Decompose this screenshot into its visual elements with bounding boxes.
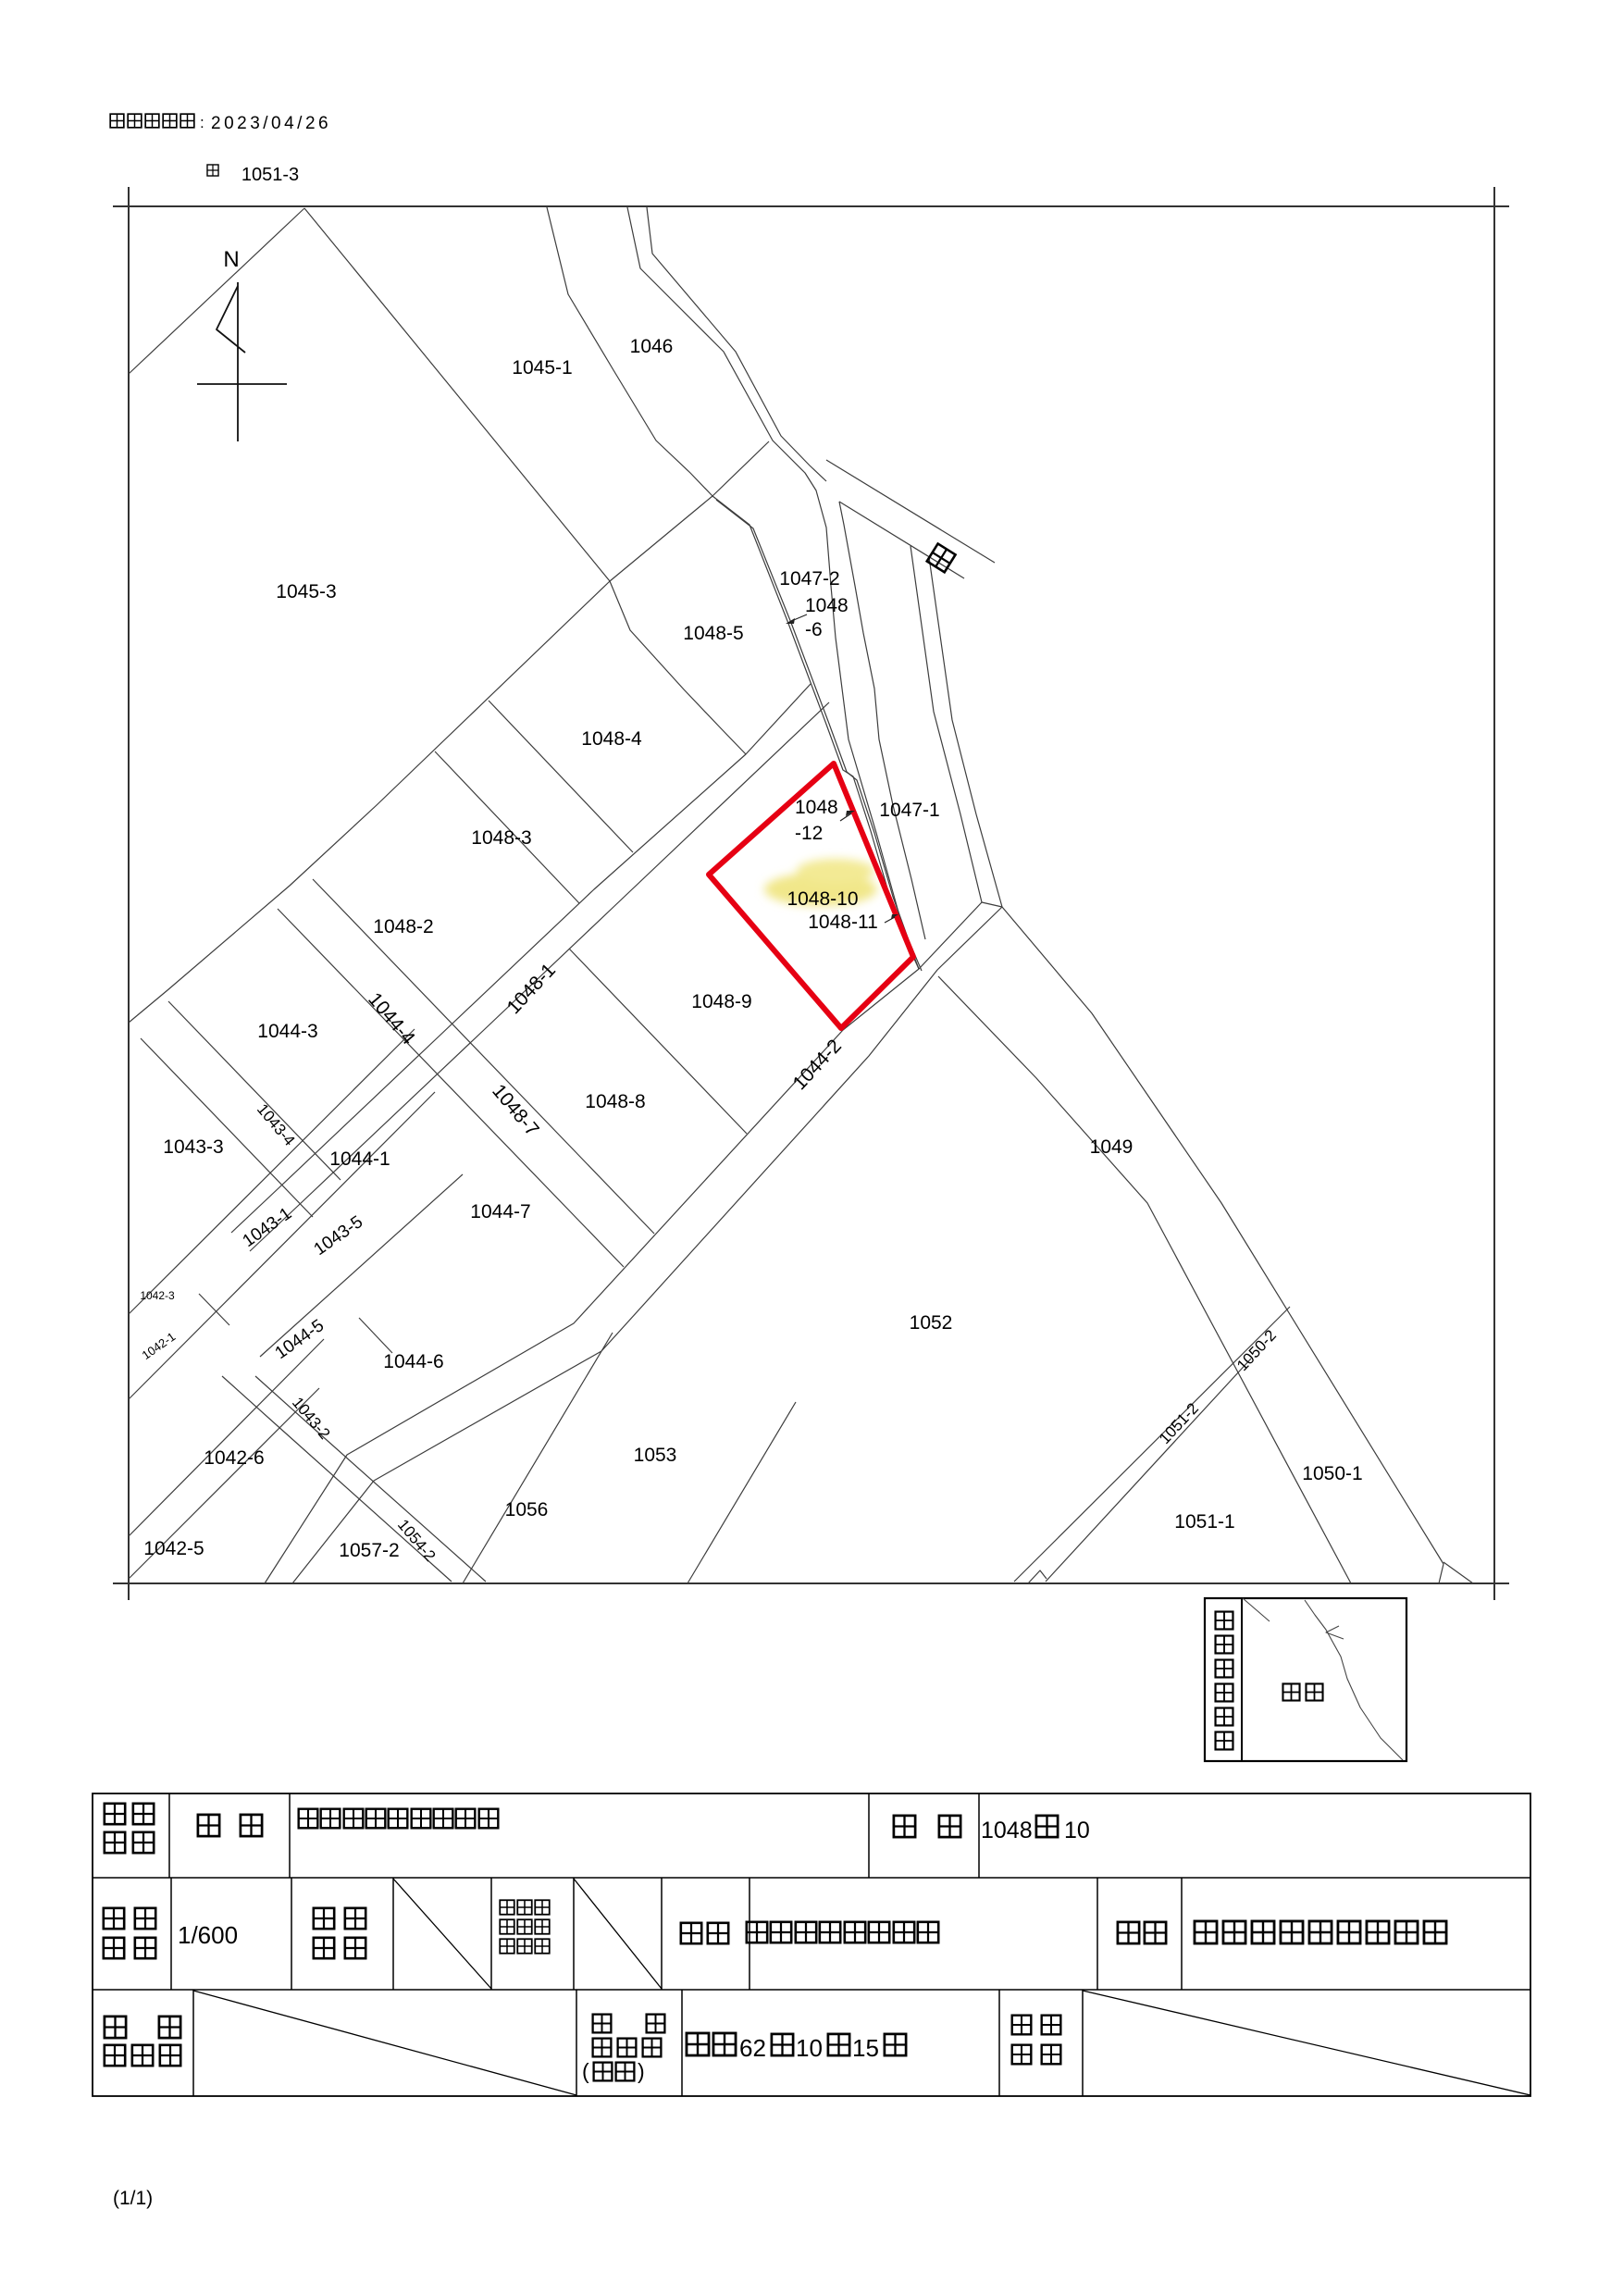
svg-text:(1/1): (1/1) [113,2188,153,2209]
svg-text:1048-11: 1048-11 [808,912,878,933]
svg-text:1048-10: 1048-10 [787,888,858,910]
svg-text:1047-1: 1047-1 [879,800,939,821]
svg-text:1052: 1052 [910,1312,953,1334]
svg-text:10: 10 [796,2034,823,2062]
svg-text:1044-1: 1044-1 [329,1148,390,1170]
svg-text:2023/04/26: 2023/04/26 [211,114,331,133]
svg-text:15: 15 [852,2034,879,2062]
svg-text:1048-9: 1048-9 [691,991,751,1012]
svg-text:1042-3: 1042-3 [140,1289,175,1302]
svg-text:1042-6: 1042-6 [204,1447,264,1469]
svg-text:(: ( [582,2059,589,2083]
svg-text:1048: 1048 [805,595,849,616]
svg-text:1048-4: 1048-4 [581,728,642,750]
svg-text:1046: 1046 [630,336,674,357]
svg-text:1047-2: 1047-2 [779,568,839,590]
svg-text:): ) [638,2059,645,2083]
svg-text:1048: 1048 [795,797,838,818]
svg-text:1045-3: 1045-3 [276,581,336,602]
svg-text:N: N [223,247,239,272]
svg-text:1045-1: 1045-1 [512,357,572,379]
svg-text:1048-2: 1048-2 [373,916,433,937]
svg-text:1044-3: 1044-3 [257,1021,317,1042]
svg-text:1044-7: 1044-7 [470,1201,530,1222]
svg-text:-6: -6 [805,619,823,640]
svg-text:1042-5: 1042-5 [143,1538,204,1559]
svg-text:-12: -12 [795,823,823,844]
svg-text:1057-2: 1057-2 [339,1540,399,1561]
svg-text::: : [200,114,204,131]
svg-text:1/600: 1/600 [178,1921,238,1949]
svg-text:1051-1: 1051-1 [1174,1511,1234,1533]
svg-text:1053: 1053 [634,1445,677,1466]
svg-text:1043-3: 1043-3 [163,1136,223,1158]
svg-text:1048-8: 1048-8 [585,1091,645,1112]
svg-text:1048-3: 1048-3 [471,827,531,849]
svg-text:1044-6: 1044-6 [383,1351,443,1372]
svg-text:1048-5: 1048-5 [683,623,743,644]
svg-text:1051-3: 1051-3 [242,165,299,185]
svg-text:62: 62 [739,2034,766,2062]
svg-text:10: 10 [1064,1818,1090,1843]
svg-text:1049: 1049 [1090,1136,1134,1158]
svg-text:1056: 1056 [505,1499,549,1520]
svg-text:1048: 1048 [981,1818,1033,1843]
svg-text:1050-1: 1050-1 [1302,1463,1362,1484]
